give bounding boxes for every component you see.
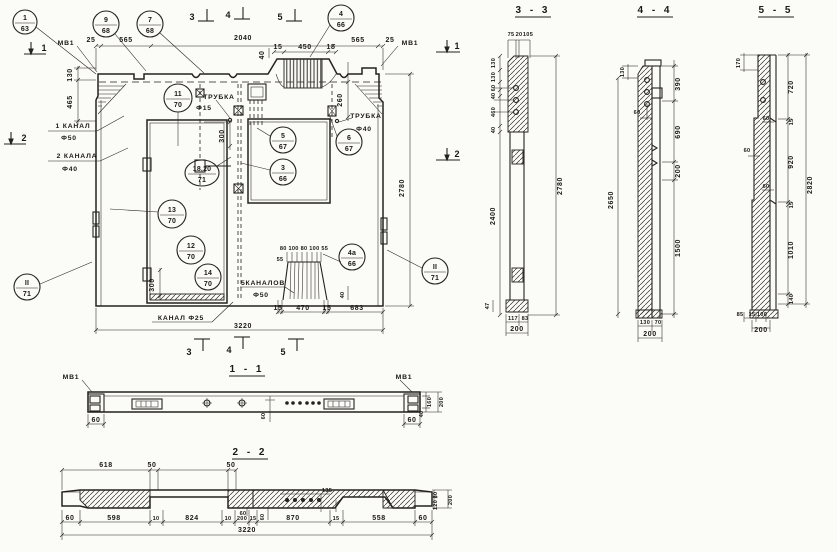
s55-dim-920: 920	[788, 155, 795, 168]
dim-565-right: 565	[351, 37, 364, 44]
s44-dim-130b: 130	[640, 320, 650, 326]
dim-55: 55	[277, 257, 284, 263]
svg-text:66: 66	[279, 176, 287, 183]
svg-text:7: 7	[148, 17, 152, 24]
s33-dim-40a: 40	[491, 93, 497, 100]
callout-5-67: 567	[270, 127, 296, 153]
label-mv1-right: МВ1	[402, 40, 419, 47]
mark-top-5: 5	[277, 12, 282, 22]
s33-dim-200: 200	[510, 326, 523, 333]
s55-dim-1010: 1010	[788, 241, 795, 259]
s33-dim-105: 105	[523, 32, 533, 38]
s55-wall-hatched	[752, 55, 770, 310]
dim-3220: 3220	[234, 323, 252, 330]
dim-15-d: 15	[323, 305, 332, 312]
s33-top-hatched	[508, 56, 528, 132]
s44-dim-70: 70	[655, 320, 662, 326]
svg-text:63: 63	[21, 26, 29, 33]
s22-dim-598: 598	[107, 515, 120, 522]
s44-dim-60: 60	[634, 110, 641, 116]
top-right-hatch-wedge	[355, 84, 382, 114]
s33-foot	[506, 300, 528, 312]
svg-text:11: 11	[174, 91, 182, 98]
mark-left-2: 2	[21, 133, 26, 143]
svg-text:1: 1	[23, 15, 27, 22]
section-3-3: 3 - 3 75 20 105 130 130 60 40 460 40 240…	[485, 5, 564, 336]
s11-label-mv1-right: МВ1	[396, 374, 413, 381]
section-5-5-title: 5 - 5	[758, 5, 793, 16]
svg-text:5: 5	[281, 133, 285, 140]
svg-text:4: 4	[339, 11, 343, 18]
s22-center-pier	[228, 490, 253, 508]
mark-bottom-4: 4	[226, 345, 231, 355]
callout-14-70: 1470	[195, 264, 221, 290]
dim-683: 683	[350, 305, 363, 312]
svg-text:71: 71	[23, 291, 31, 298]
s55-dim-100: 100	[757, 312, 767, 318]
s33-dim-460: 460	[491, 107, 497, 117]
label-kanal2: 2 КАНАЛА	[57, 153, 98, 160]
s22-dim-135: 135	[322, 488, 332, 494]
section-4-4-title: 4 - 4	[637, 5, 672, 16]
svg-text:14: 14	[204, 270, 212, 277]
dim-260: 260	[337, 93, 344, 106]
s55-dim-15a: 15	[789, 119, 795, 126]
svg-text:66: 66	[348, 261, 356, 268]
dim-450: 450	[298, 44, 311, 51]
label-f40: Ф40	[356, 126, 372, 133]
callout-18-20-71: 18,2071	[185, 160, 219, 186]
s22-dim-870: 870	[286, 515, 299, 522]
s22-dim-50a: 50	[148, 462, 157, 469]
s55-dim-2820: 2820	[807, 176, 814, 194]
label-trubka40: ТРУБКА	[350, 113, 382, 120]
s11-texts: МВ1 МВ1 60 60 60 160 40 200	[63, 374, 445, 424]
s55-dim-140: 140	[789, 294, 795, 304]
s33-dim-83: 83	[522, 316, 529, 322]
section-marks: 1 2 1 2 3 4 5 3 4 5	[4, 7, 460, 357]
svg-text:67: 67	[279, 144, 287, 151]
fan-channels	[283, 252, 327, 300]
section-3-3-title: 3 - 3	[515, 5, 550, 16]
label-trubka15: ТРУБКА	[203, 94, 235, 101]
svg-text:70: 70	[204, 281, 212, 288]
s33-dim-60: 60	[491, 85, 497, 92]
label-5kanalov-f50: Ф50	[253, 292, 269, 299]
section-4-4: 4 - 4 130 60 2650 390 690 200 1500 130 7…	[608, 5, 682, 342]
mark-top-3: 3	[189, 12, 194, 22]
svg-text:70: 70	[187, 254, 195, 261]
dim-130: 130	[67, 68, 74, 81]
section-5-5: 5 - 5 170 60 60 60 720 15 920 15 1010 14…	[736, 5, 814, 334]
dim-2780: 2780	[399, 179, 406, 197]
label-f15: Ф15	[196, 105, 212, 112]
callout-II-71-left: II71	[14, 274, 40, 300]
s33-dim-75: 75	[508, 32, 515, 38]
callout-1-63: 163	[13, 10, 37, 34]
mark-right-1: 1	[454, 41, 459, 51]
s55-dim-85: 85	[737, 312, 744, 318]
s55-texts: 170 60 60 60 720 15 920 15 1010 140 2820…	[736, 58, 814, 334]
svg-text:70: 70	[168, 218, 176, 225]
s22-dim-10a: 10	[153, 516, 160, 522]
svg-text:II: II	[25, 280, 29, 287]
s44-dim-1500: 1500	[675, 239, 682, 257]
s55-dim-15b: 15	[789, 202, 795, 209]
mark-bottom-3: 3	[186, 347, 191, 357]
s22-dim-558: 558	[372, 515, 385, 522]
main-texts: МВ1 МВ1 25 565 2040 565 25 15 450 15 40 …	[56, 35, 419, 330]
s44-dim-390: 390	[675, 77, 682, 90]
s22-dim-50b: 50	[227, 462, 236, 469]
callout-11-70: 1170	[164, 84, 192, 112]
s44-dim-2650: 2650	[608, 191, 615, 209]
s22-dim-15b: 15	[333, 516, 340, 522]
s11-inner-items	[132, 396, 354, 409]
s22-dim-10b: 10	[225, 516, 232, 522]
channel-lines	[200, 84, 332, 298]
s33-dim-20: 20	[516, 32, 523, 38]
dim-40-bottom: 40	[340, 292, 346, 299]
dim-25-right: 25	[386, 37, 395, 44]
mark-left-1: 1	[41, 43, 46, 53]
section-1-1: 1 - 1 МВ1 МВ1 60	[63, 364, 445, 428]
s22-dim-80: 80	[433, 492, 439, 499]
callout-3-66: 366	[270, 159, 296, 185]
svg-text:71: 71	[198, 177, 206, 184]
dim-565-left: 565	[119, 37, 132, 44]
label-kanal25: КАНАЛ Ф25	[158, 315, 204, 322]
s22-left-pier	[80, 490, 150, 508]
s22-dim-60l: 60	[66, 515, 75, 522]
section-1-1-title: 1 - 1	[229, 364, 264, 375]
s11-dim-60-left: 60	[92, 417, 101, 424]
s55-dim-60b: 60	[763, 116, 770, 122]
s55-dim-170: 170	[736, 58, 742, 68]
dim-40-top: 40	[259, 51, 266, 60]
dim-15-a: 15	[274, 44, 283, 51]
label-kanal1-f50: Ф50	[61, 135, 77, 142]
s33-dim-130a: 130	[491, 58, 497, 68]
s11-dim-60-right: 60	[408, 417, 417, 424]
drawing-canvas: 1 2 1 2 3 4 5 3 4 5 163 968 768 466 1170…	[0, 0, 837, 552]
dim-fan: 80 100 80 100 55	[280, 246, 328, 252]
section-2-2: 2 - 2 618 50 50 80	[60, 447, 454, 540]
svg-text:68: 68	[102, 28, 110, 35]
top-striped-block	[284, 59, 322, 88]
dim-15-c: 15	[274, 305, 283, 312]
s11-dim-200: 200	[439, 397, 445, 407]
edge-notches	[93, 212, 387, 244]
s22-dim-120: 120	[433, 500, 439, 510]
leader-lines	[36, 25, 422, 322]
svg-text:67: 67	[345, 146, 353, 153]
s44-dim-690: 690	[675, 125, 682, 138]
s22-dim-824: 824	[185, 515, 198, 522]
svg-text:13: 13	[168, 207, 176, 214]
svg-text:12: 12	[187, 243, 195, 250]
callout-13-70: 1370	[158, 200, 186, 228]
main-panel-view: 1 2 1 2 3 4 5 3 4 5 163 968 768 466 1170…	[4, 5, 460, 357]
mark-bottom-5: 5	[280, 347, 285, 357]
main-dim-lines	[74, 44, 414, 334]
s22-dim-60-rot: 60	[260, 514, 266, 521]
s33-dim-2400: 2400	[490, 207, 497, 225]
svg-text:4а: 4а	[348, 250, 356, 257]
s11-dim-160: 160	[427, 397, 433, 407]
s22-dim-200: 200	[237, 516, 247, 522]
s11-dim-40: 40	[419, 411, 425, 418]
s33-dim-130b: 130	[491, 72, 497, 82]
svg-text:6: 6	[347, 135, 351, 142]
svg-text:71: 71	[431, 275, 439, 282]
section-2-2-title: 2 - 2	[232, 447, 267, 458]
dim-2040: 2040	[234, 35, 252, 42]
callout-II-71-right: II71	[422, 258, 448, 284]
s11-label-mv1-left: МВ1	[63, 374, 80, 381]
dim-465: 465	[67, 95, 74, 108]
s22-dim-200r: 200	[448, 495, 454, 505]
callout-4a-66: 4а66	[339, 244, 365, 270]
svg-text:70: 70	[174, 102, 182, 109]
s55-dim-60c: 60	[763, 184, 770, 190]
s55-dims-lines	[740, 53, 810, 332]
s55-dim-60a: 60	[744, 148, 751, 154]
mark-top-4: 4	[225, 10, 230, 20]
svg-text:18,20: 18,20	[193, 166, 212, 173]
top-left-hatch-wedge	[98, 84, 126, 114]
s44-dim-200r: 200	[675, 164, 682, 177]
s33-dim-117: 117	[508, 316, 518, 322]
s55-dim-720: 720	[788, 80, 795, 93]
s22-dim-60r: 60	[419, 515, 428, 522]
dim-470: 470	[296, 305, 309, 312]
s22-dim-618: 618	[99, 462, 112, 469]
s33-dim-47: 47	[485, 303, 491, 310]
svg-text:3: 3	[281, 165, 285, 172]
s55-dim-200: 200	[754, 327, 767, 334]
label-mv1-left: МВ1	[58, 40, 75, 47]
left-door-opening	[143, 120, 227, 303]
svg-text:9: 9	[104, 17, 108, 24]
dim-15-b: 15	[327, 44, 336, 51]
svg-text:II: II	[433, 264, 437, 271]
s33-dim-2780: 2780	[557, 177, 564, 195]
dim-25-left: 25	[87, 37, 96, 44]
s44-foot	[636, 310, 662, 318]
s11-dim-60-center: 60	[261, 413, 267, 420]
label-kanal1: 1 КАНАЛ	[56, 123, 91, 130]
s44-dim-200b: 200	[643, 331, 656, 338]
dim-300-bottom: 300	[149, 278, 156, 291]
mark-right-2: 2	[454, 149, 459, 159]
s33-dim-40b: 40	[491, 127, 497, 134]
callout-9-68: 968	[93, 11, 119, 37]
s44-dim-130: 130	[620, 67, 626, 77]
drawing-sheet: 1 2 1 2 3 4 5 3 4 5 163 968 768 466 1170…	[0, 0, 837, 552]
svg-text:66: 66	[337, 22, 345, 29]
label-5kanalov: 5КАНАЛОВ	[241, 280, 285, 287]
s22-dim-15a: 15	[250, 516, 257, 522]
label-kanal2-f40: Ф40	[62, 166, 78, 173]
callout-7-68: 768	[137, 11, 163, 37]
callout-12-70: 1270	[177, 236, 205, 264]
s22-dim-3220: 3220	[238, 527, 256, 534]
s55-dim-15c: 15	[749, 312, 756, 318]
dim-300-trubka: 300	[219, 129, 226, 142]
svg-text:68: 68	[146, 28, 154, 35]
callout-4-66: 466	[328, 5, 354, 31]
